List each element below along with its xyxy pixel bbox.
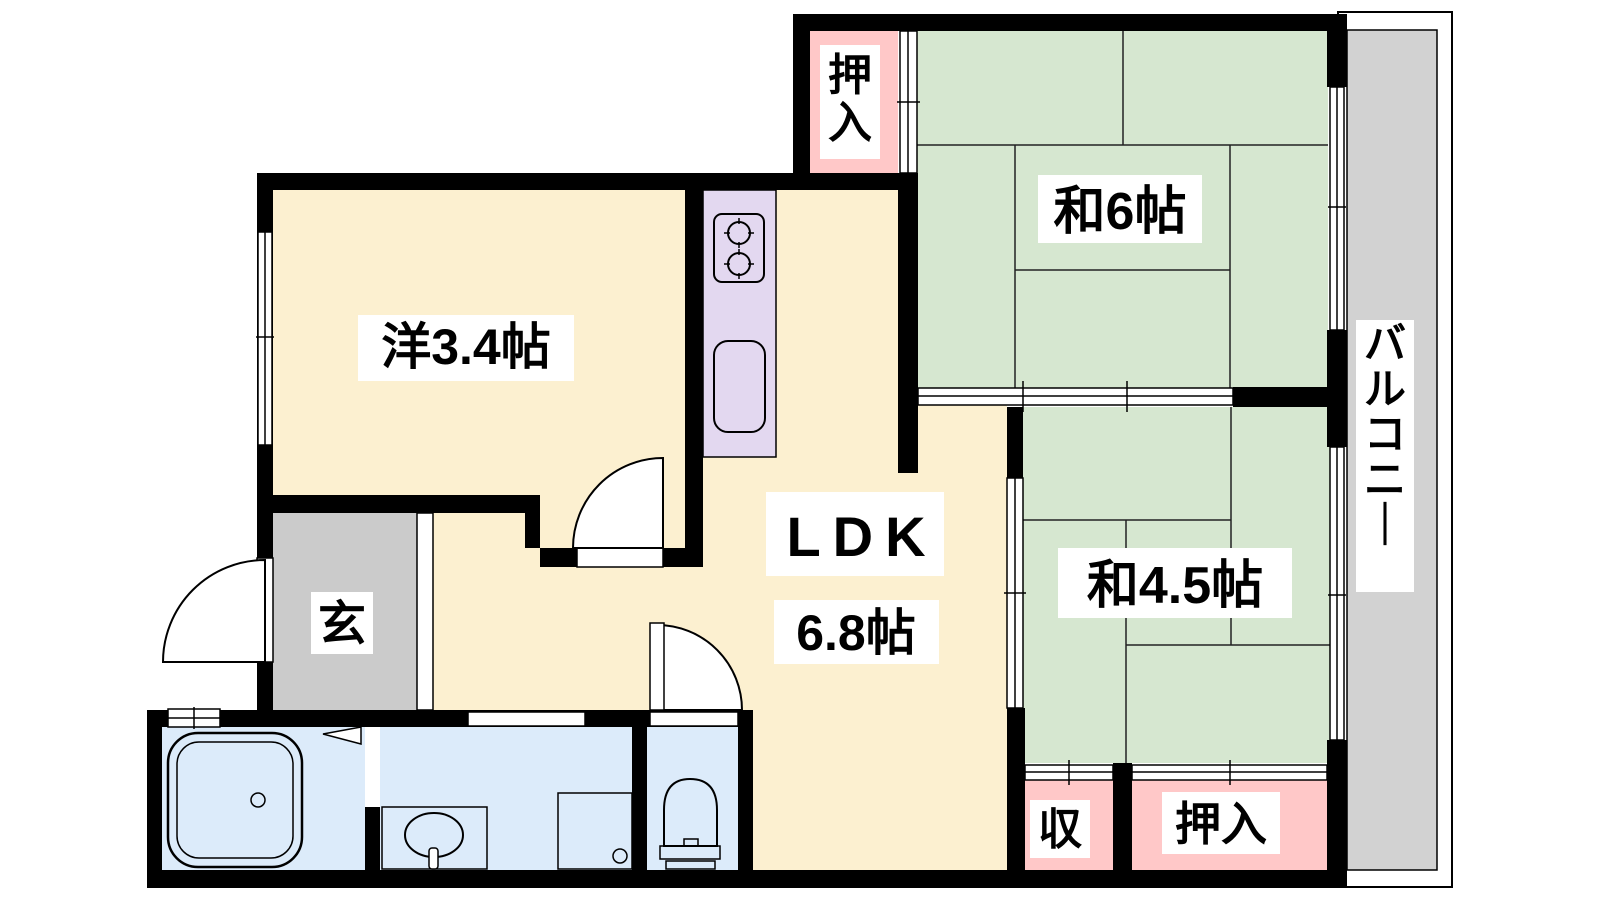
floor-washroom [380, 727, 632, 870]
room-label-closet-top: 押入 [828, 51, 872, 148]
doorway-toilet [650, 712, 738, 726]
wall-japanese45-left-top [1007, 407, 1023, 478]
wall-top-upper [793, 14, 1347, 31]
wall-right-mid [1327, 330, 1347, 447]
wall-left-upper-block [793, 14, 810, 190]
fusuma-ldk-japanese45 [1004, 478, 1026, 708]
wall-kitchen-west [685, 190, 703, 567]
wall-ldk-japanese6 [898, 190, 918, 473]
room-label-ldk-size: 6.8帖 [796, 605, 916, 661]
floor-bathroom [162, 727, 365, 870]
wall-washroom-toilet [632, 727, 647, 870]
wall-jog [525, 513, 540, 548]
wall-bottom [147, 870, 1347, 888]
wall-bath-block-left [147, 710, 162, 888]
room-label-japanese6: 和6帖 [1054, 183, 1187, 241]
window-japanese6-balcony [1328, 87, 1346, 330]
room-label-western: 洋3.4帖 [381, 319, 551, 375]
room-label-entrance: 玄 [318, 598, 366, 651]
room-label-ldk: LDK [786, 505, 937, 568]
room-label-balcony: バルコニ｜ [1364, 320, 1406, 548]
door-swing-entrance [163, 560, 265, 662]
fusuma-closet-top [897, 31, 920, 173]
room-label-japanese45: 和4.5帖 [1087, 557, 1263, 615]
wall-top-main [257, 173, 918, 190]
entrance-step-strip [417, 513, 433, 710]
kitchen-counter [703, 190, 776, 457]
window-japanese45-balcony [1328, 447, 1346, 740]
wall-closet-pillar [1113, 763, 1132, 870]
wall-right-top [1327, 14, 1347, 87]
door-leaf-toilet [650, 623, 664, 710]
floorplan-canvas: 洋3.4帖 LDK 6.8帖 和6帖 和4.5帖 玄 押入 収 押入 バルコニ｜ [0, 0, 1600, 900]
wall-right-bottom [1327, 740, 1347, 888]
window-bathroom [168, 707, 220, 729]
wall-west-bottom [257, 495, 540, 513]
doorway-western [577, 548, 663, 567]
room-label-storage: 収 [1038, 805, 1082, 854]
floorplan: 洋3.4帖 LDK 6.8帖 和6帖 和4.5帖 玄 押入 収 押入 バルコニ｜ [0, 0, 1600, 900]
room-label-closet-bottom: 押入 [1175, 798, 1267, 850]
wall-toilet-right [738, 710, 753, 870]
doorway-washroom-sliding [468, 712, 585, 726]
wall-japanese6-bottom-right [1233, 387, 1330, 407]
wall-japanese45-left-bottom [1007, 708, 1025, 888]
window-western-left [256, 232, 274, 445]
wall-bath-divider [365, 807, 380, 870]
